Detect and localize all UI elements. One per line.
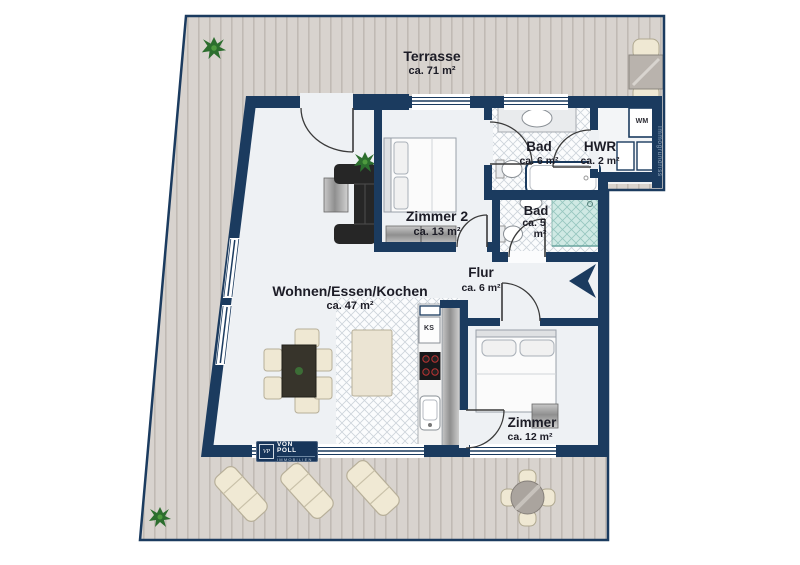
toilet-icon [496, 160, 522, 178]
room-area-zimmer: ca. 12 m² [508, 432, 553, 443]
toilet-icon [498, 226, 523, 242]
room-label-wohnen: Wohnen/Essen/Kochen [272, 284, 427, 298]
room-label-hwr: HWR [584, 140, 616, 154]
room-area-bad2-line2: m² [534, 229, 547, 240]
room-area-flur: ca. 6 m² [461, 283, 500, 294]
logo-division: IMMOBILIEN [277, 456, 315, 462]
logo-brand: VON POLL [277, 442, 315, 455]
bed-zimmer [476, 330, 556, 412]
room-label-bad2: Bad [524, 204, 549, 217]
room-label-zimmer2: Zimmer 2 [406, 209, 468, 223]
stove-icon [420, 352, 441, 380]
logo-monogram: VP [259, 444, 274, 459]
kitchen-island [352, 330, 392, 396]
room-area-zimmer2: ca. 13 m² [413, 227, 460, 238]
room-label-terrasse: Terrasse [403, 49, 460, 63]
room-area-bad1: ca. 6 m² [519, 156, 558, 167]
room-area-wohnen: ca. 47 m² [326, 301, 373, 312]
room-area-hwr: ca. 2 m² [580, 156, 619, 167]
room-label-bad1: Bad [526, 140, 552, 154]
room-area-terrasse: ca. 71 m² [408, 66, 455, 77]
von-poll-logo: VP VON POLL IMMOBILIEN [256, 441, 318, 462]
washing-machine-label: WM [636, 118, 649, 125]
fridge-label: KS [424, 325, 434, 332]
room-label-zimmer: Zimmer [508, 416, 557, 430]
kitchen-sink [420, 396, 440, 430]
room-label-flur: Flur [468, 266, 494, 280]
kitchen-cabinet-column [442, 304, 460, 446]
terrace-bistro-set [629, 39, 663, 105]
watermark: Immogrundriss [656, 126, 663, 216]
shower-area [552, 198, 598, 246]
room-area-bad2-line1: ca. 5 [522, 218, 545, 229]
bed-zimmer2 [384, 138, 456, 212]
floor-plan: Terrasse ca. 71 m² Bad ca. 6 m² HWR ca. … [0, 0, 800, 565]
